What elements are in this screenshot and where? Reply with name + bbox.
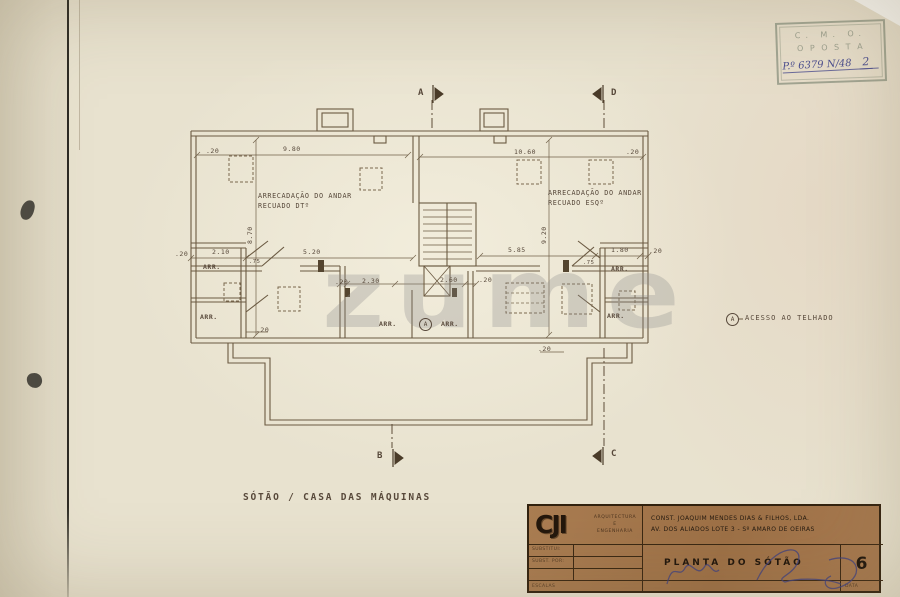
stamp-copy-number: 2 xyxy=(859,55,873,70)
signature-scribbles xyxy=(639,536,883,595)
watermark-text: zume xyxy=(322,238,691,350)
municipal-stamp: C. M. O. O P O S T A P.º 6379 N/48 2 xyxy=(775,19,887,85)
scanned-floor-plan-sheet: zume .209.8010.60.208.709.20.202.10.755.… xyxy=(0,0,900,597)
firm-logo: CJI xyxy=(535,510,587,542)
company-line: CONST. JOAQUIM MENDES DIAS & FILHOS, LDA… xyxy=(651,513,879,524)
titleblock-rule xyxy=(529,568,642,569)
title-block: CJI ARQUITECTURA E ENGENHARIA SUBSTITUI:… xyxy=(527,504,881,593)
titleblock-rule xyxy=(573,544,574,580)
firm-caption-line: ARQUITECTURA xyxy=(591,514,639,521)
titleblock-rule xyxy=(529,580,642,581)
escalas-label: ESCALAS xyxy=(532,584,555,589)
titleblock-rule xyxy=(529,544,642,545)
stamp-line2: O P O S T A xyxy=(778,41,884,54)
firm-caption-line: ENGENHARIA xyxy=(591,528,639,535)
titleblock-rule xyxy=(529,556,642,557)
substitui-label: SUBSTITUI: xyxy=(532,547,561,552)
stamp-line1: C. M. O. xyxy=(777,28,883,41)
firm-caption: ARQUITECTURA E ENGENHARIA xyxy=(591,514,639,535)
company-line: AV. DOS ALIADOS LOTE 3 - Sº AMARO DE OEI… xyxy=(651,524,879,535)
firm-caption-line: E xyxy=(591,521,639,528)
subst-por-label: SUBST. POR: xyxy=(532,559,564,564)
company-info: CONST. JOAQUIM MENDES DIAS & FILHOS, LDA… xyxy=(651,513,879,535)
stamp-handwritten-process: P.º 6379 N/48 2 xyxy=(782,57,878,74)
stamp-process-number: P.º 6379 N/48 xyxy=(782,58,852,73)
